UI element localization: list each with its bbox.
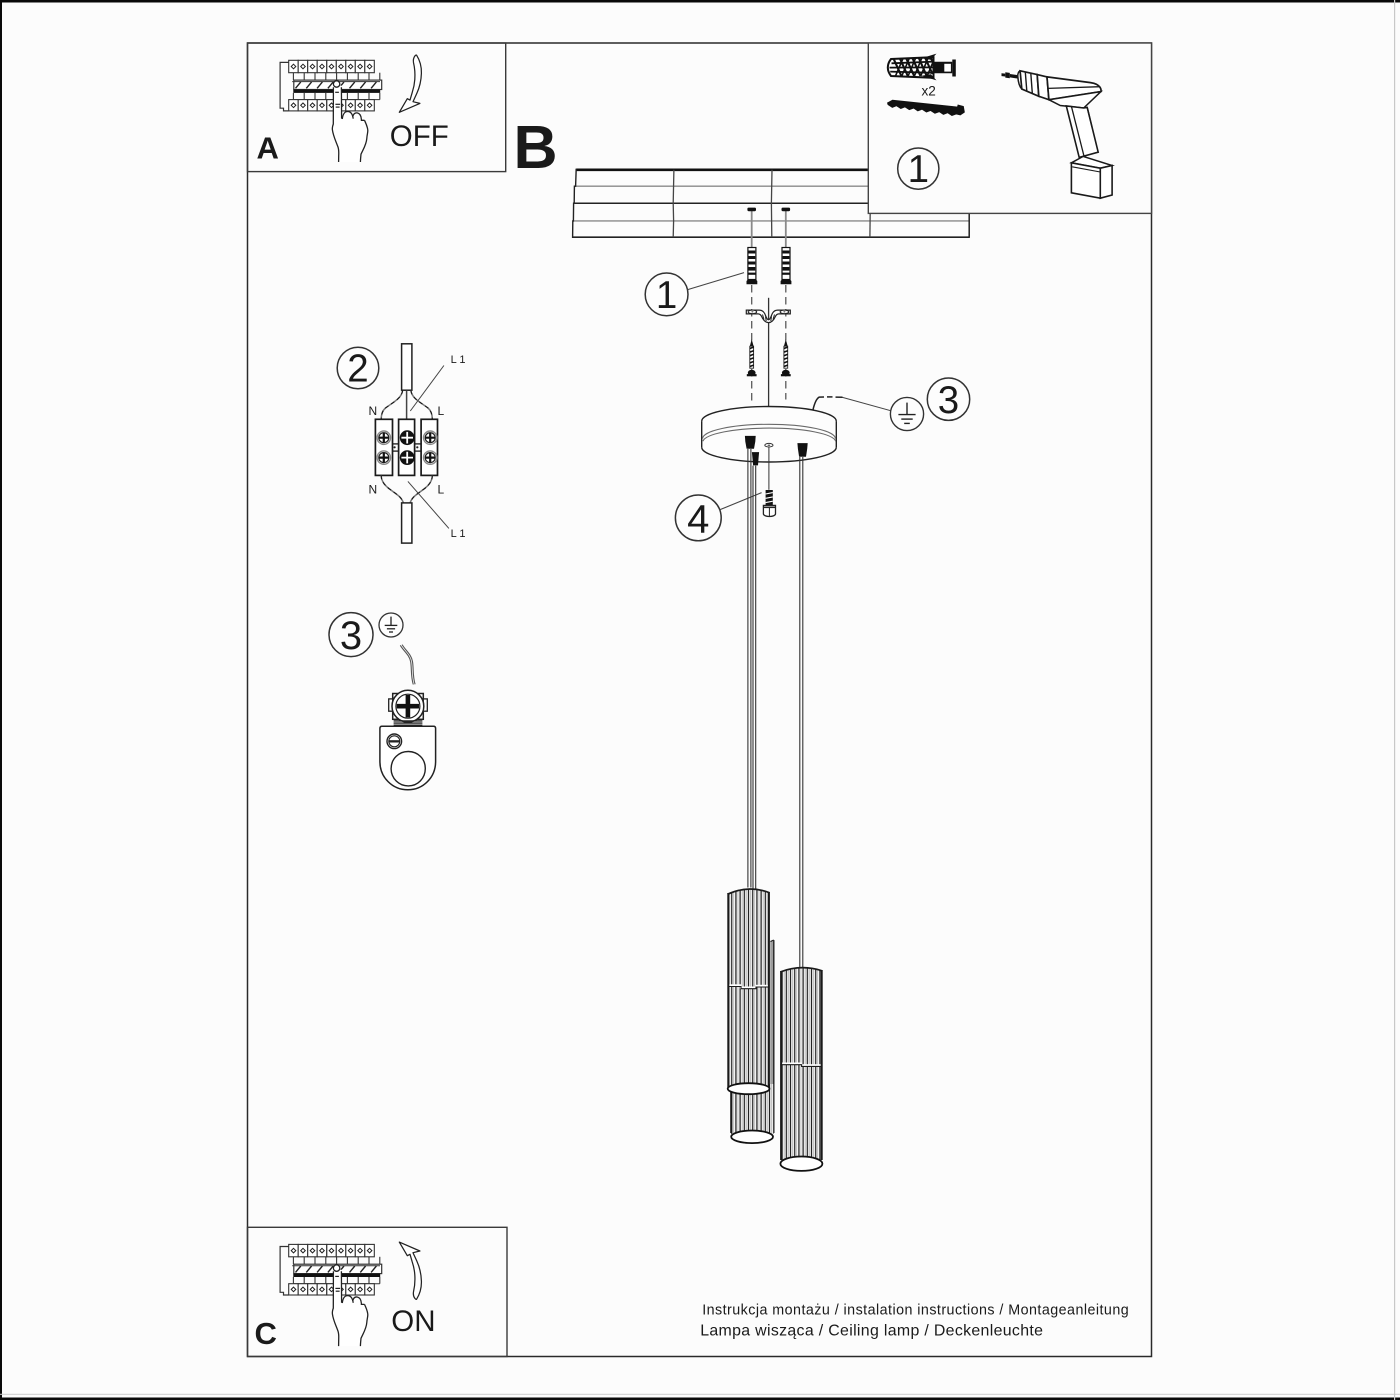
svg-text:ON: ON: [391, 1305, 435, 1338]
svg-text:Lampa wisząca / Ceiling lamp /: Lampa wisząca / Ceiling lamp / Deckenleu…: [700, 1322, 1043, 1339]
svg-text:x2: x2: [922, 84, 936, 99]
svg-text:4: 4: [687, 498, 709, 542]
svg-text:3: 3: [340, 614, 362, 658]
svg-text:L: L: [438, 483, 445, 497]
svg-text:N: N: [369, 404, 378, 418]
svg-text:C: C: [255, 1316, 277, 1351]
svg-text:A: A: [257, 130, 279, 165]
svg-text:1: 1: [656, 274, 677, 317]
svg-text:2: 2: [347, 348, 368, 391]
svg-text:Instrukcja montażu / instalati: Instrukcja montażu / instalation instruc…: [702, 1303, 1129, 1319]
svg-text:L: L: [438, 404, 445, 418]
svg-text:B: B: [514, 113, 558, 181]
svg-text:3: 3: [938, 379, 959, 422]
svg-text:OFF: OFF: [390, 120, 449, 153]
svg-text:N: N: [369, 483, 378, 497]
svg-text:L 1: L 1: [451, 354, 466, 366]
svg-text:1: 1: [908, 148, 929, 191]
svg-text:L 1: L 1: [451, 528, 466, 540]
